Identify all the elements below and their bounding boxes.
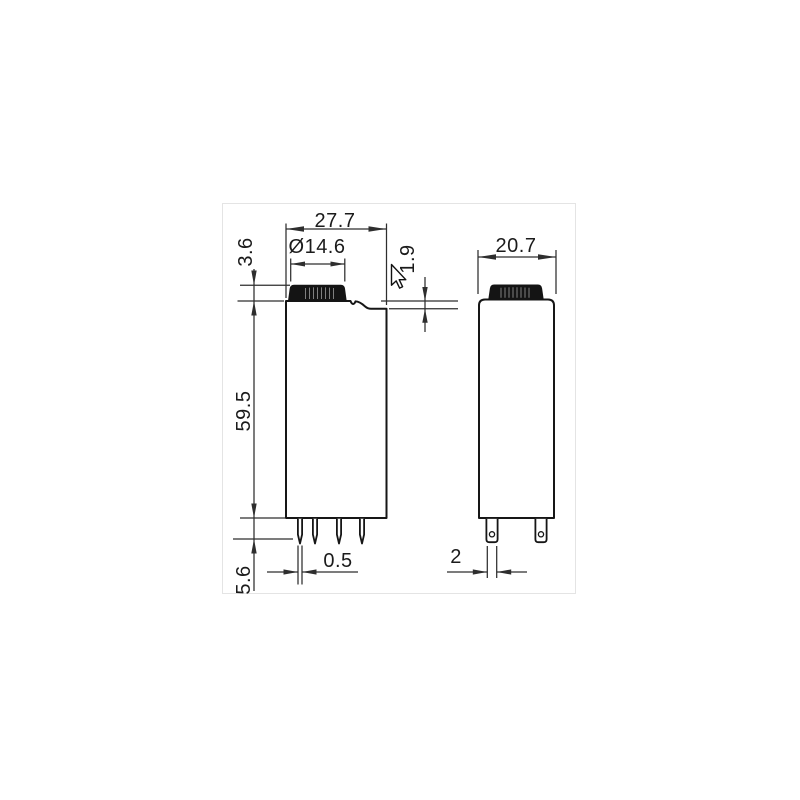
blade-pin <box>535 519 546 542</box>
dim-blade-width-label: 2 <box>450 547 462 567</box>
pin <box>298 519 302 544</box>
dim-pin-width-label: 0.5 <box>323 551 352 571</box>
dim-button-height-label: 3.6 <box>236 237 256 266</box>
side-blade-pins <box>486 519 546 542</box>
side-button-cap <box>489 285 543 300</box>
pin <box>360 519 364 544</box>
pin <box>313 519 317 544</box>
dim-button-diameter-lines <box>291 259 345 282</box>
dim-side-width-label: 20.7 <box>496 236 537 256</box>
dim-front-width-label: 27.7 <box>315 211 356 231</box>
dim-pin-length-label: 5.6 <box>234 565 254 594</box>
front-view <box>286 285 387 543</box>
front-body-outline <box>286 301 387 518</box>
drawing-page: 27.7 Ø14.6 3.6 1.9 59.5 5.6 0.5 20.7 2 <box>0 0 800 800</box>
dim-collar-step-label: 1.9 <box>398 244 418 273</box>
blade-pin-hole <box>489 532 494 537</box>
pin <box>337 519 341 544</box>
front-pins <box>298 519 364 544</box>
blade-pin <box>486 519 497 542</box>
dim-button-diameter-label: Ø14.6 <box>289 237 346 257</box>
side-body-outline <box>479 300 554 519</box>
side-view <box>479 285 554 542</box>
blade-pin-hole <box>538 532 543 537</box>
dim-body-height-label: 59.5 <box>234 391 254 432</box>
dimension-drawing-canvas <box>0 0 800 800</box>
